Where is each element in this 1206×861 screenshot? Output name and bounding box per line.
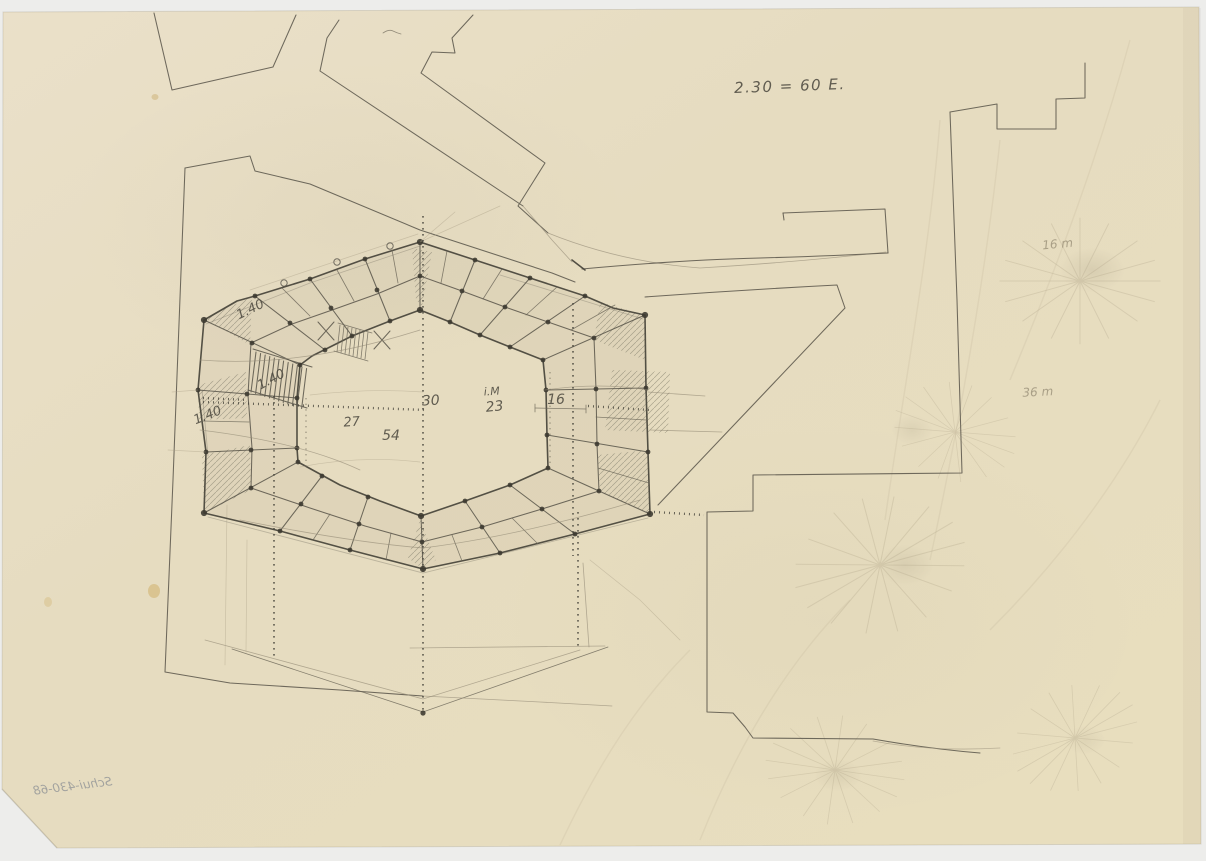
dim-54: 54 [382, 428, 400, 444]
dim-im-label: i.M [483, 384, 500, 398]
smudge-blob [1060, 248, 1124, 292]
dim-16: 16 [547, 392, 565, 408]
note-36m: 36 m [1022, 384, 1053, 400]
scanned-sketch-page: 2.30 = 60 E. 1.40 1.40 1.40 30 i.M 23 16… [0, 0, 1206, 861]
note-16m: 16 m [1042, 236, 1074, 253]
sketch-canvas: 2.30 = 60 E. 1.40 1.40 1.40 30 i.M 23 16… [0, 0, 1206, 861]
dim-27: 27 [343, 414, 361, 430]
dim-30: 30 [421, 393, 440, 410]
dim-23: 23 [485, 398, 504, 416]
